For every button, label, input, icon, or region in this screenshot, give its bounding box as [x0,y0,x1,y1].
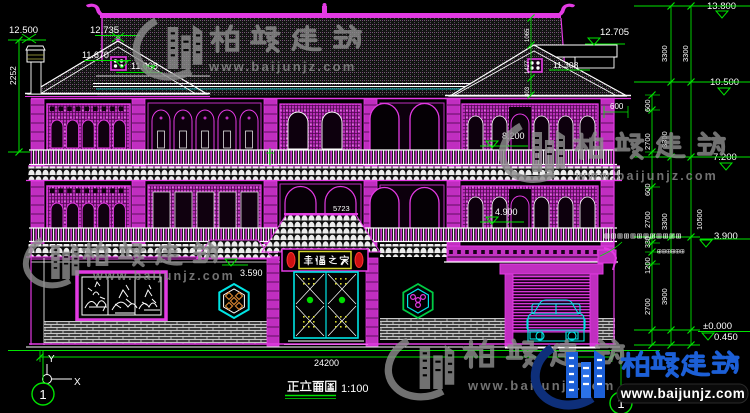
svg-text:1200: 1200 [643,257,652,274]
svg-text:600: 600 [643,183,652,196]
svg-text:3300: 3300 [681,45,690,62]
svg-text:3.900: 3.900 [714,231,738,242]
svg-text:3300: 3300 [660,213,669,230]
svg-text:600: 600 [643,99,652,112]
svg-text:0.450: 0.450 [714,332,738,343]
svg-text:3900: 3900 [660,288,669,305]
svg-text:10500: 10500 [695,209,704,230]
svg-text:4.900: 4.900 [495,207,518,217]
svg-text:12.735: 12.735 [90,25,119,36]
svg-text:www.baijunjz.com: www.baijunjz.com [208,59,357,74]
svg-text:5723: 5723 [333,204,350,213]
svg-text:24200: 24200 [314,358,339,368]
svg-text:2700: 2700 [643,211,652,228]
svg-text:12.705: 12.705 [600,27,629,38]
svg-text:www.baijunjz.com: www.baijunjz.com [92,269,235,283]
svg-text:11.670: 11.670 [82,50,109,60]
svg-text:11.308: 11.308 [553,60,579,70]
svg-text:1427: 1427 [525,60,531,74]
svg-text:3300: 3300 [660,45,669,62]
svg-text:www.baijunjz.com: www.baijunjz.com [575,169,718,183]
svg-text:600: 600 [610,102,624,111]
svg-text:1:100: 1:100 [341,383,369,395]
svg-text:www.baijunjz.com: www.baijunjz.com [620,386,746,401]
svg-text:1: 1 [39,387,46,402]
svg-text:3.590: 3.590 [240,268,263,278]
svg-text:1065: 1065 [525,28,531,42]
svg-text:X: X [74,377,81,388]
svg-text:2700: 2700 [643,298,652,315]
svg-text:12.500: 12.500 [9,25,38,36]
svg-text:7.200: 7.200 [713,152,737,163]
svg-text:10.500: 10.500 [710,77,739,88]
svg-text:±0.000: ±0.000 [703,321,732,332]
svg-text:2252: 2252 [8,66,18,85]
svg-text:2700: 2700 [643,133,652,150]
svg-text:Y: Y [48,354,55,365]
svg-text:13.800: 13.800 [707,1,736,12]
svg-text:803: 803 [525,86,531,97]
